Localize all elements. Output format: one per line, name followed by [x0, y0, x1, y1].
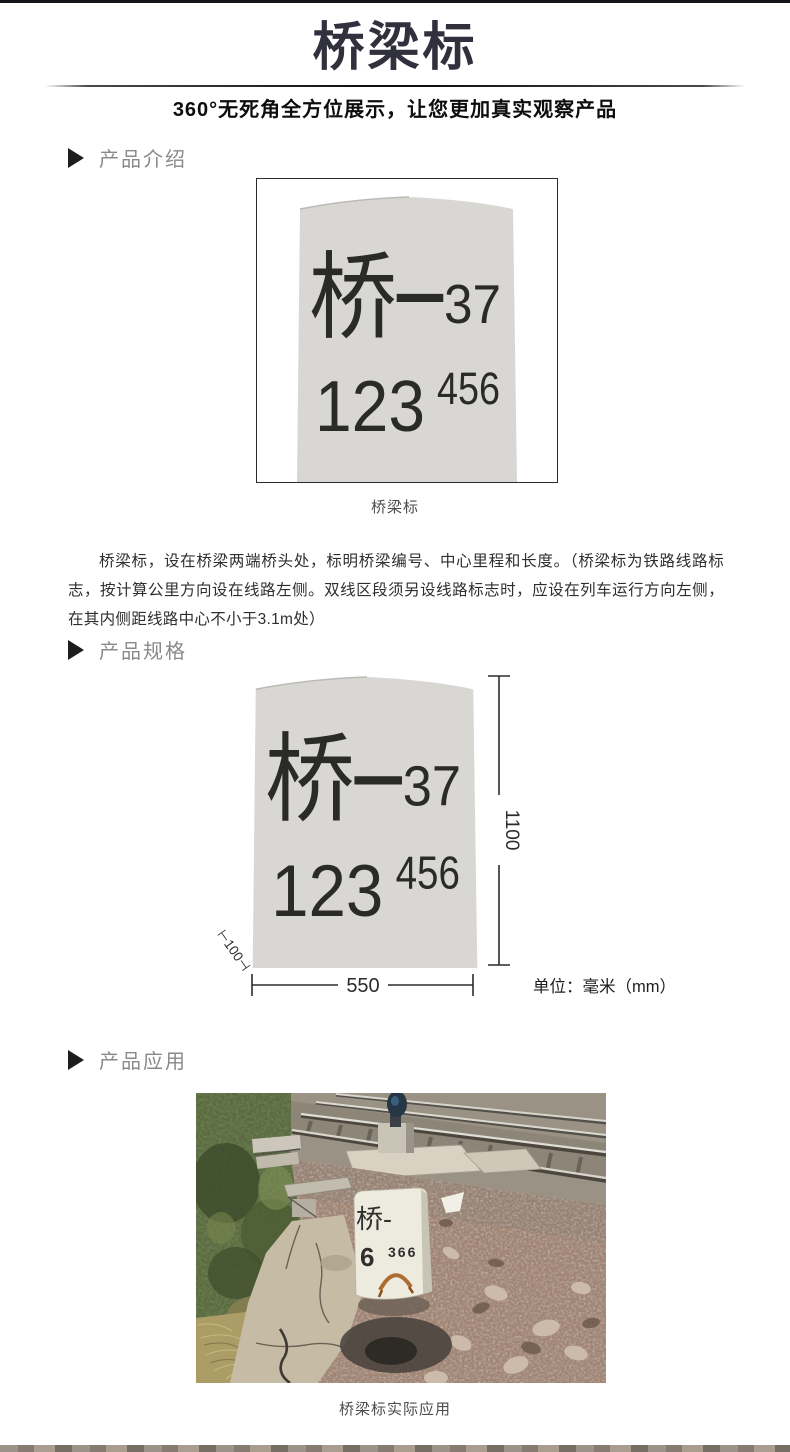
page-title: 桥梁标	[0, 18, 790, 78]
bridge-marker-graphic: 桥 — 37 123 456	[297, 196, 517, 482]
product-page: 桥梁标 360°无死角全方位展示，让您更加真实观察产品 产品介绍 桥 — 37 …	[0, 0, 790, 1452]
stone-text-366: 366	[388, 1244, 417, 1260]
marker-char: 桥	[265, 725, 355, 834]
photo-caption: 桥梁标实际应用	[0, 1398, 790, 1419]
dim-width-label: 550	[346, 975, 379, 997]
application-photo: 桥- 6 366	[196, 1093, 606, 1383]
page-subtitle: 360°无死角全方位展示，让您更加真实观察产品	[0, 93, 790, 122]
marker-num-123: 123	[315, 367, 425, 447]
photo-marker-stone: 桥- 6 366	[354, 1188, 432, 1299]
section-app-label: 产品应用	[99, 1045, 187, 1074]
dim-depth-label: ⊢100⊣	[214, 927, 253, 973]
product-figure-box: 桥 — 37 123 456	[256, 178, 558, 483]
stone-text-6: 6	[360, 1242, 374, 1272]
marker-dash: —	[398, 266, 442, 324]
marker-num-456: 456	[437, 363, 500, 414]
figure1-caption: 桥梁标	[0, 496, 790, 517]
stone-text-qiao: 桥-	[356, 1204, 392, 1234]
triangle-right-icon	[68, 640, 84, 660]
marker-num-123: 123	[271, 849, 383, 932]
dim-height-label: 1100	[501, 810, 522, 851]
marker-num-456: 456	[396, 846, 460, 898]
section-intro-header: 产品介绍	[68, 143, 187, 172]
section-spec-label: 产品规格	[99, 635, 187, 664]
section-spec-header: 产品规格	[68, 635, 187, 664]
bridge-marker-graphic: 桥 — 37 123 456	[253, 677, 478, 968]
marker-num-37: 37	[444, 273, 501, 335]
unit-label: 单位：毫米（mm）	[533, 977, 676, 996]
section-app-header: 产品应用	[68, 1045, 187, 1074]
bottom-edge-strip	[0, 1445, 790, 1452]
top-edge-strip	[0, 0, 790, 3]
marker-dash: —	[356, 747, 402, 806]
marker-num-37: 37	[403, 755, 461, 818]
triangle-right-icon	[68, 1050, 84, 1070]
marker-char: 桥	[309, 245, 397, 351]
triangle-right-icon	[68, 148, 84, 168]
spec-figure: 桥 — 37 123 456 1100 550 ⊢100⊣ 单位：毫米（mm）	[200, 665, 680, 1010]
intro-paragraph: 桥梁标，设在桥梁两端桥头处，标明桥梁编号、中心里程和长度。（桥梁标为铁路线路标志…	[68, 547, 724, 634]
section-intro-label: 产品介绍	[99, 143, 187, 172]
title-divider	[45, 85, 745, 87]
